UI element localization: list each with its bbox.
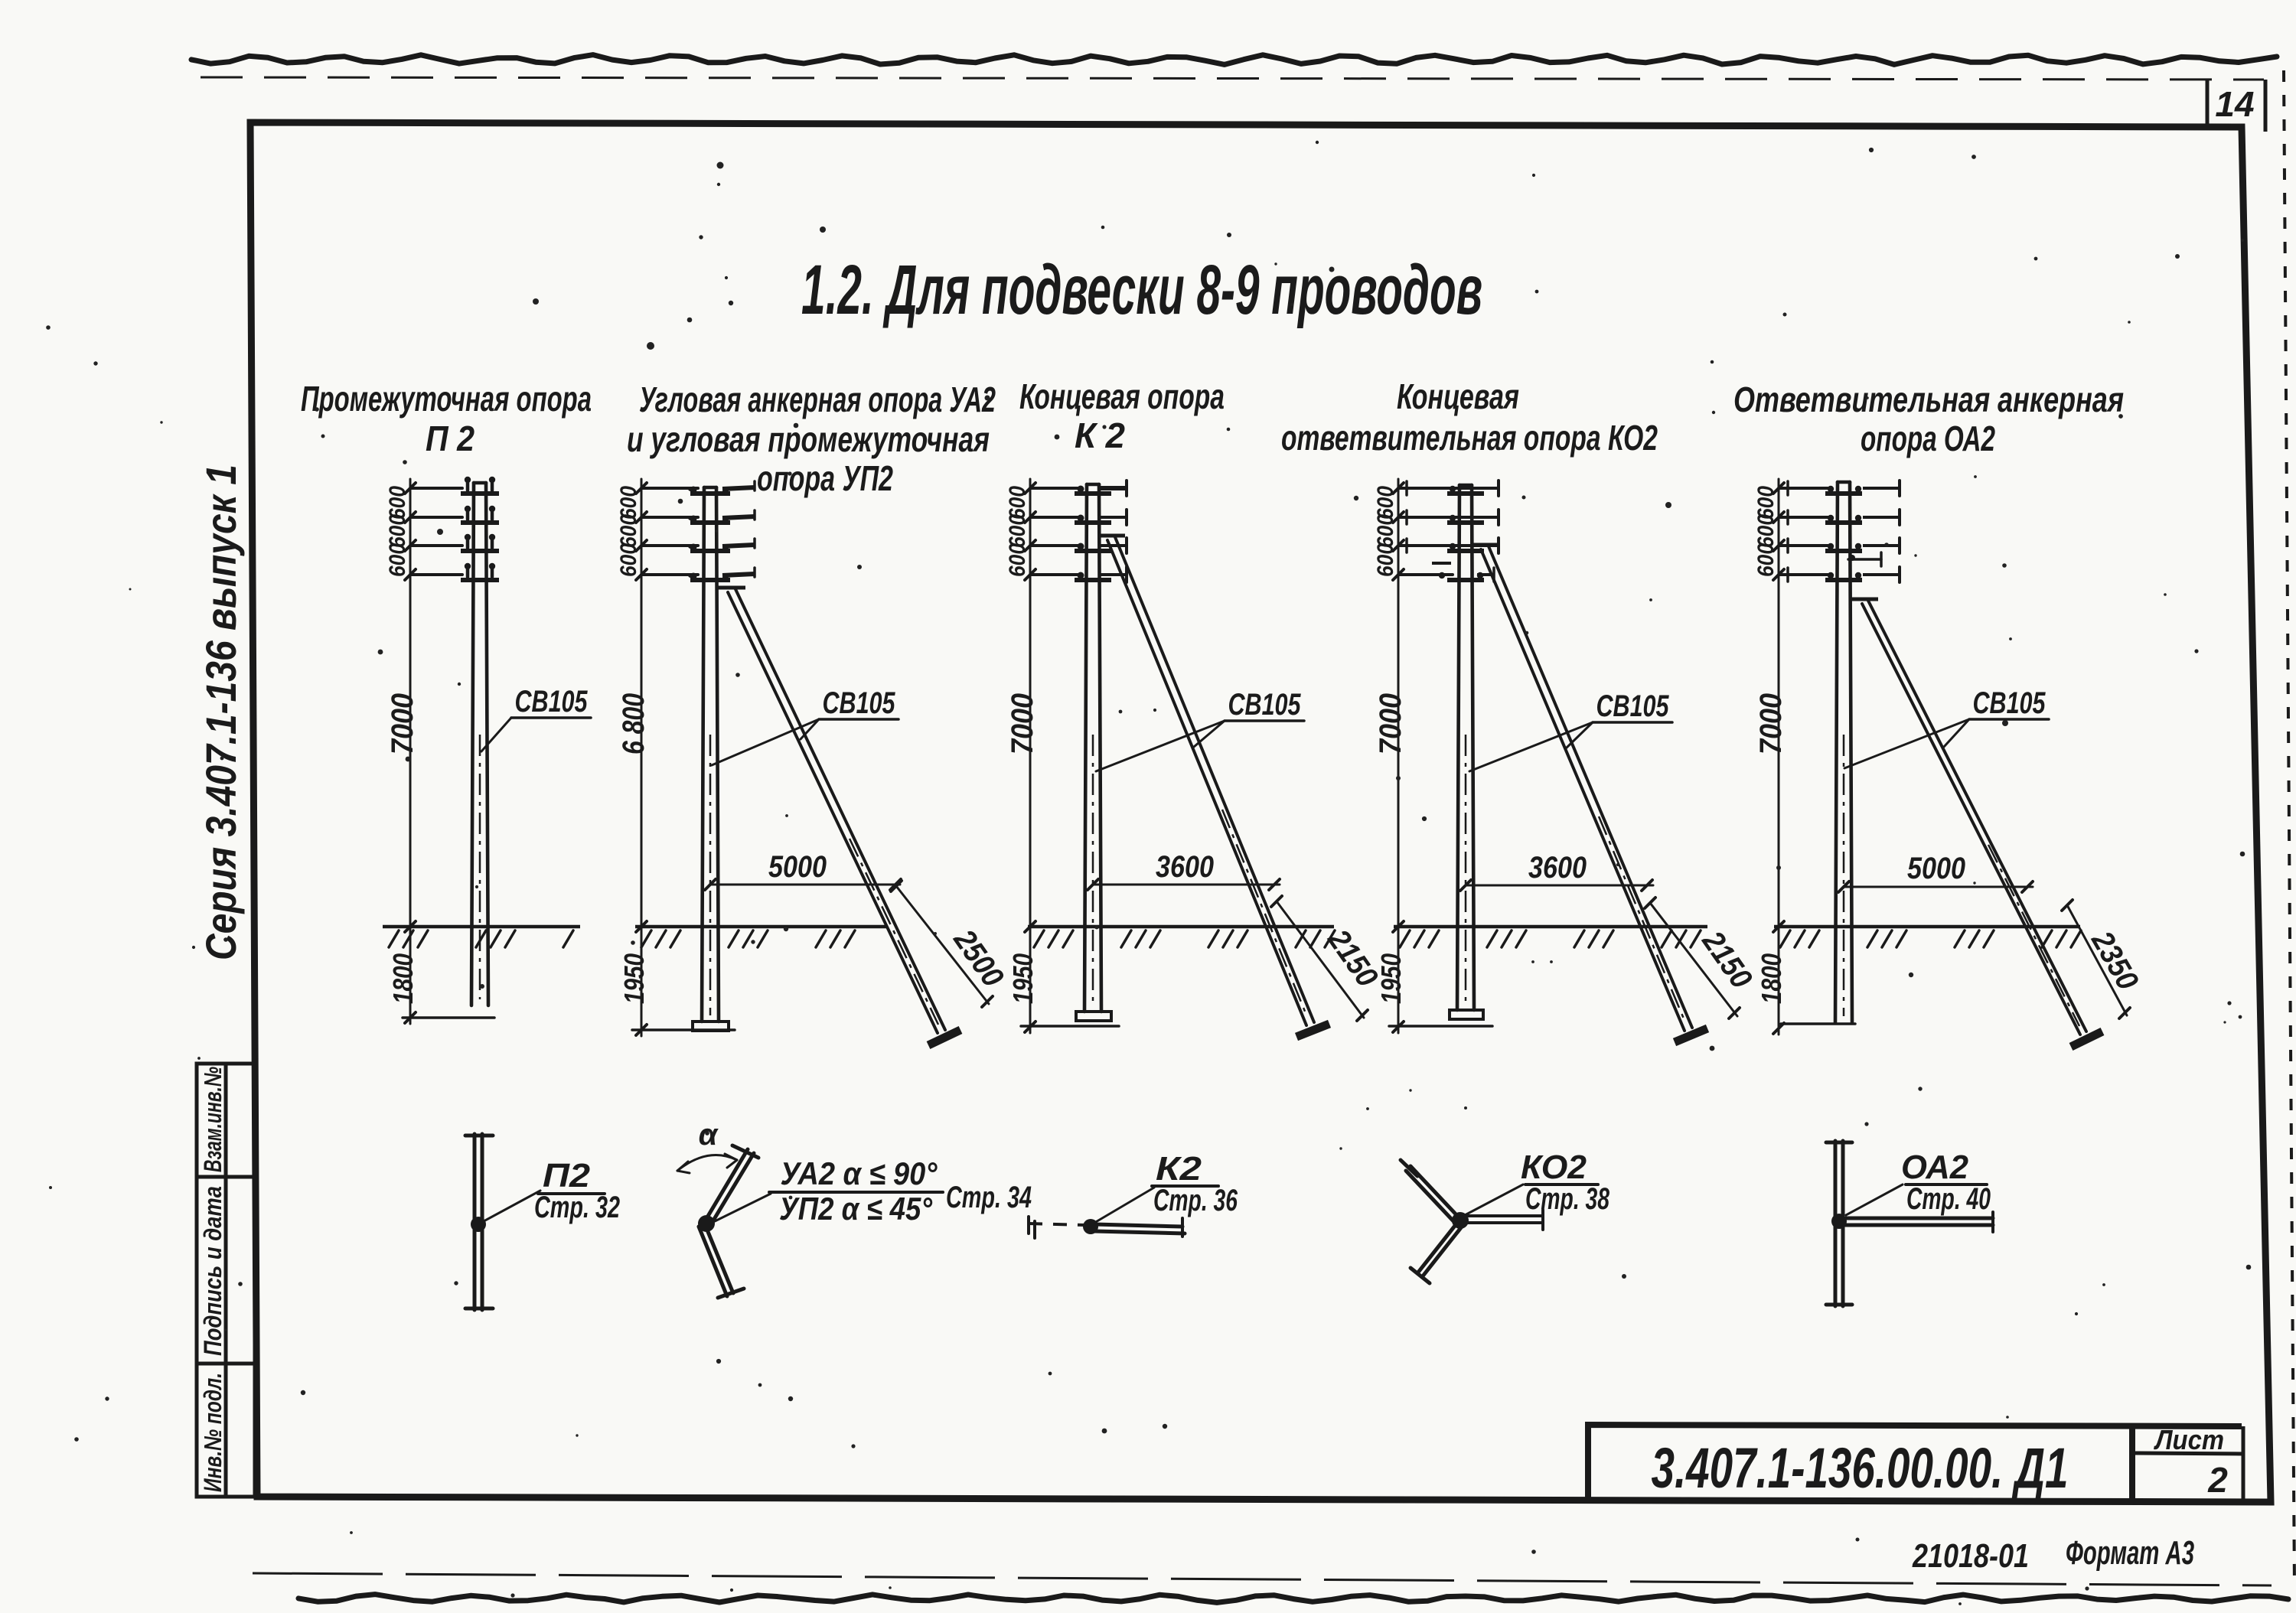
svg-text:α: α (699, 1118, 719, 1152)
svg-text:7000: 7000 (386, 693, 419, 754)
svg-text:5000: 5000 (768, 850, 827, 884)
svg-text:21018-01: 21018-01 (1912, 1537, 2029, 1575)
svg-text:Концевая: Концевая (1397, 376, 1519, 416)
svg-text:опора ОА2: опора ОА2 (1861, 419, 1995, 458)
svg-text:Концевая опора: Концевая опора (1019, 376, 1225, 416)
svg-text:5000: 5000 (1907, 852, 1965, 885)
svg-text:КО2: КО2 (1521, 1149, 1587, 1186)
svg-text:3600: 3600 (1528, 851, 1587, 885)
svg-text:СВ105: СВ105 (823, 686, 896, 720)
svg-text:7000: 7000 (1754, 693, 1788, 754)
svg-text:7000: 7000 (1006, 693, 1039, 754)
svg-text:14: 14 (2215, 84, 2254, 124)
svg-text:3600: 3600 (1156, 850, 1214, 884)
svg-text:600: 600 (616, 543, 641, 577)
svg-text:УА2 α ≤ 90°: УА2 α ≤ 90° (781, 1155, 938, 1191)
svg-text:600: 600 (1005, 543, 1030, 577)
svg-text:К2: К2 (1156, 1150, 1202, 1188)
svg-text:1.2. Для подвески 8-9 проводов: 1.2. Для подвески 8-9 проводов (801, 251, 1482, 329)
svg-text:Серия 3.407.1-136 выпуск 1: Серия 3.407.1-136 выпуск 1 (197, 464, 245, 960)
svg-text:1950: 1950 (1375, 953, 1407, 1004)
svg-text:600: 600 (616, 514, 641, 548)
svg-text:опора УП2: опора УП2 (757, 458, 893, 498)
svg-text:СВ105: СВ105 (1973, 686, 2047, 720)
svg-text:ОА2: ОА2 (1901, 1149, 1969, 1186)
svg-text:1950: 1950 (1007, 953, 1039, 1004)
svg-text:1800: 1800 (387, 953, 419, 1004)
svg-text:Ответвительная анкерная: Ответвительная анкерная (1733, 380, 2124, 419)
svg-text:Промежуточная опора: Промежуточная опора (301, 379, 592, 419)
svg-text:Подпись и дата: Подпись и дата (199, 1186, 227, 1356)
svg-text:К 2: К 2 (1075, 415, 1125, 455)
svg-text:600: 600 (1005, 514, 1030, 548)
svg-text:СВ105: СВ105 (1228, 688, 1302, 722)
svg-text:ответвительная опора КО2: ответвительная опора КО2 (1281, 418, 1658, 458)
svg-text:7000: 7000 (1374, 693, 1407, 754)
svg-text:600: 600 (1753, 543, 1779, 577)
svg-text:УП2 α ≤ 45°: УП2 α ≤ 45° (779, 1191, 933, 1227)
svg-text:600: 600 (385, 514, 410, 548)
svg-text:Формат А3: Формат А3 (2066, 1534, 2194, 1572)
svg-text:СВ105: СВ105 (515, 685, 589, 719)
svg-text:1800: 1800 (1756, 953, 1787, 1004)
svg-text:600: 600 (1373, 543, 1398, 577)
svg-text:СВ105: СВ105 (1596, 689, 1670, 723)
svg-text:600: 600 (1373, 514, 1398, 548)
svg-text:600: 600 (1753, 514, 1779, 548)
svg-text:Инв.№ подл.: Инв.№ подл. (199, 1373, 227, 1492)
svg-text:Стр. 38: Стр. 38 (1525, 1182, 1610, 1216)
svg-text:и угловая промежуточная: и угловая промежуточная (627, 419, 990, 459)
svg-text:Стр. 32: Стр. 32 (534, 1191, 620, 1224)
svg-text:Стр. 36: Стр. 36 (1153, 1184, 1238, 1217)
svg-text:Лист: Лист (2153, 1424, 2224, 1455)
svg-text:600: 600 (385, 543, 410, 577)
svg-text:Стр. 34: Стр. 34 (946, 1181, 1032, 1214)
svg-text:2: 2 (2207, 1460, 2228, 1500)
svg-text:Взам.инв.№: Взам.инв.№ (199, 1067, 227, 1172)
svg-text:1950: 1950 (618, 953, 650, 1004)
svg-text:П2: П2 (543, 1157, 591, 1194)
svg-text:Угловая анкерная опора УА2: Угловая анкерная опора УА2 (639, 380, 996, 419)
svg-text:Стр. 40: Стр. 40 (1906, 1182, 1991, 1216)
svg-text:3.407.1-136.00.00. Д1: 3.407.1-136.00.00. Д1 (1652, 1436, 2069, 1500)
svg-text:6 800: 6 800 (617, 693, 651, 754)
svg-text:П 2: П 2 (426, 419, 475, 458)
